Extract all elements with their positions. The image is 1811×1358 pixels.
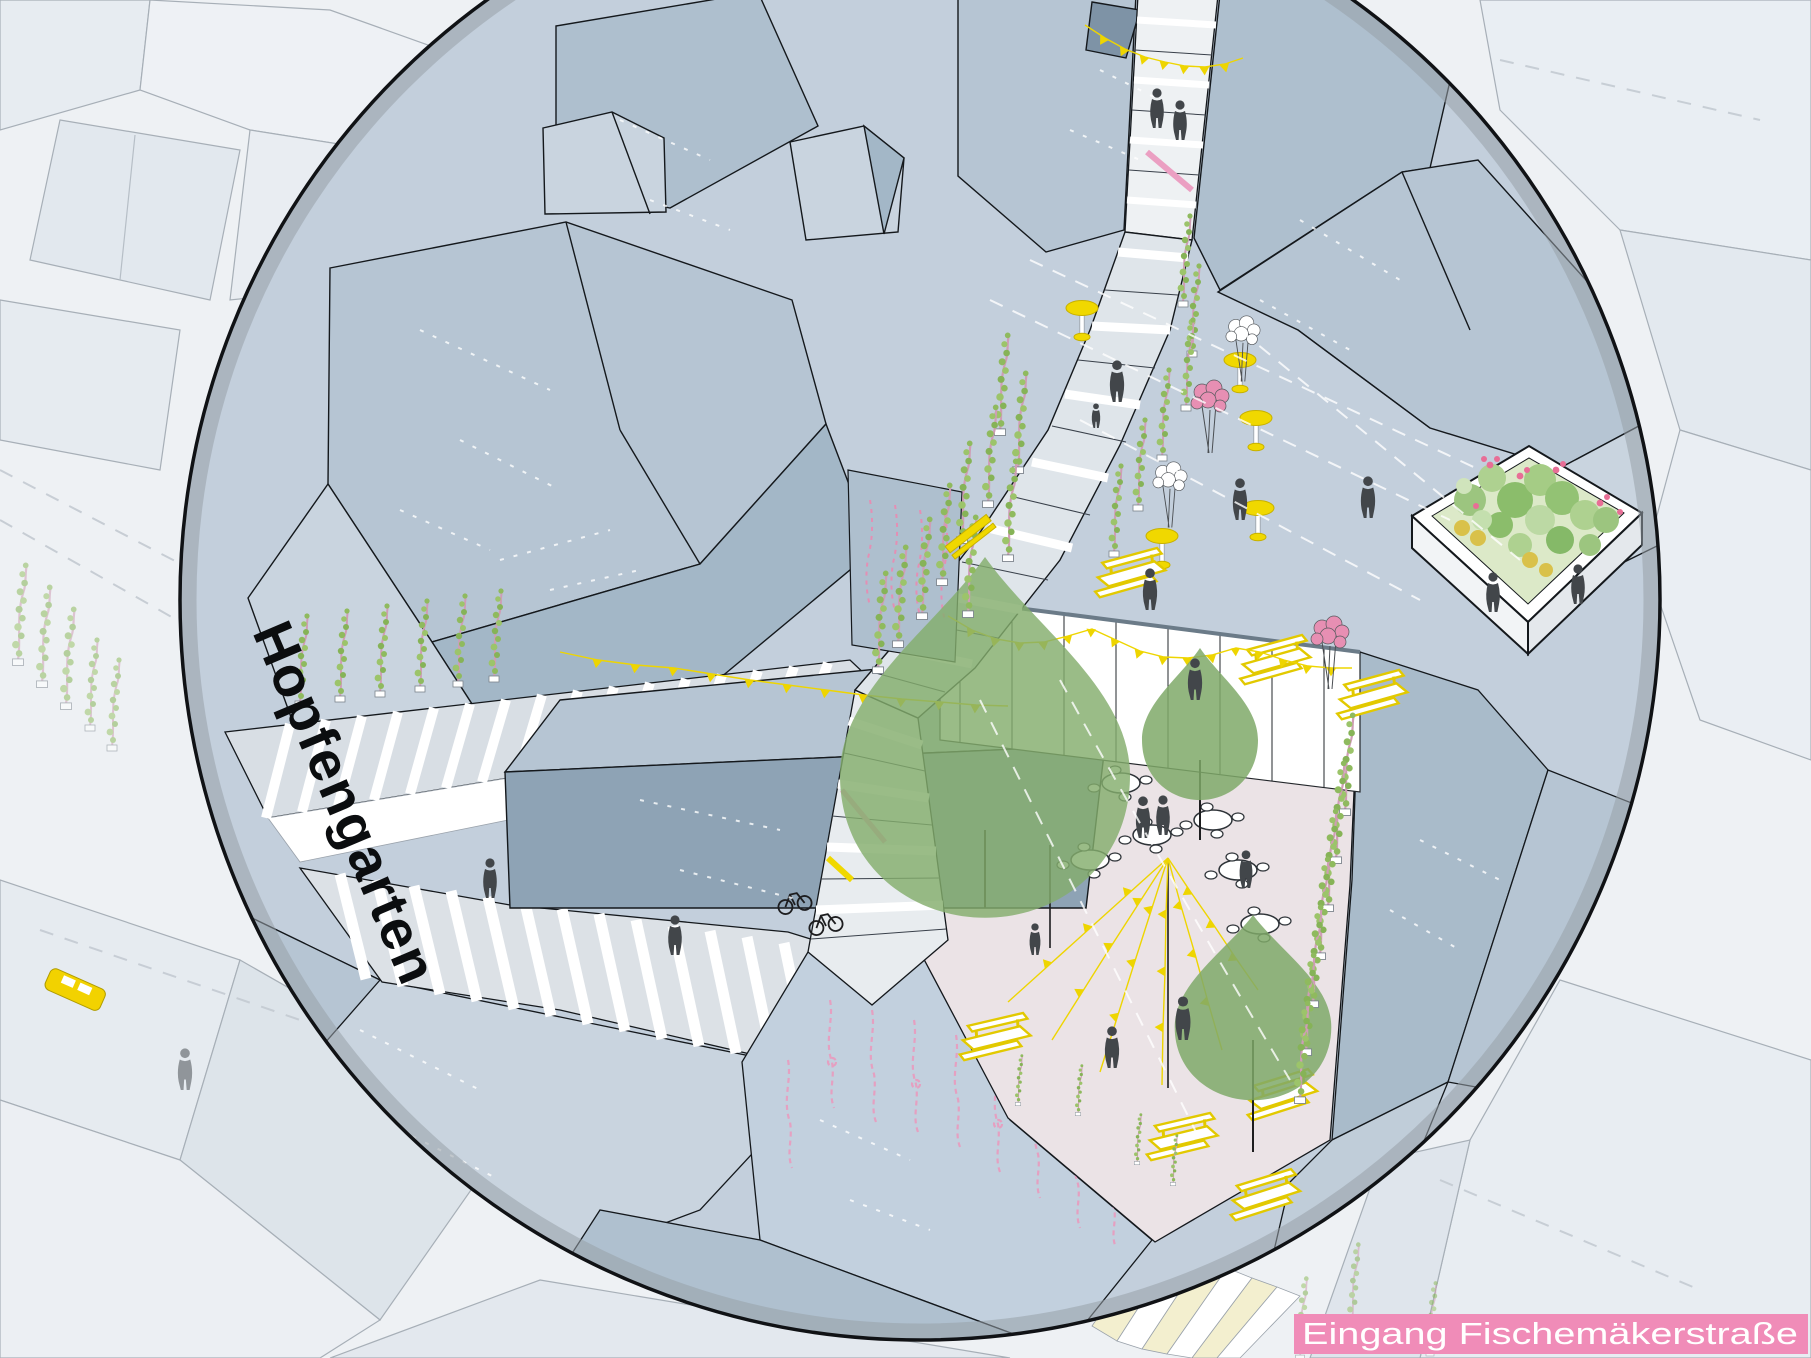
site-plan-illustration: Hopfengarten Eingang Fischemäkerstraße: [0, 0, 1811, 1358]
entrance-label: Eingang Fischemäkerstraße: [1294, 1314, 1808, 1354]
site-plan-svg: Hopfengarten Eingang Fischemäkerstraße: [0, 0, 1811, 1358]
entrance-label-text: Eingang Fischemäkerstraße: [1302, 1316, 1798, 1351]
